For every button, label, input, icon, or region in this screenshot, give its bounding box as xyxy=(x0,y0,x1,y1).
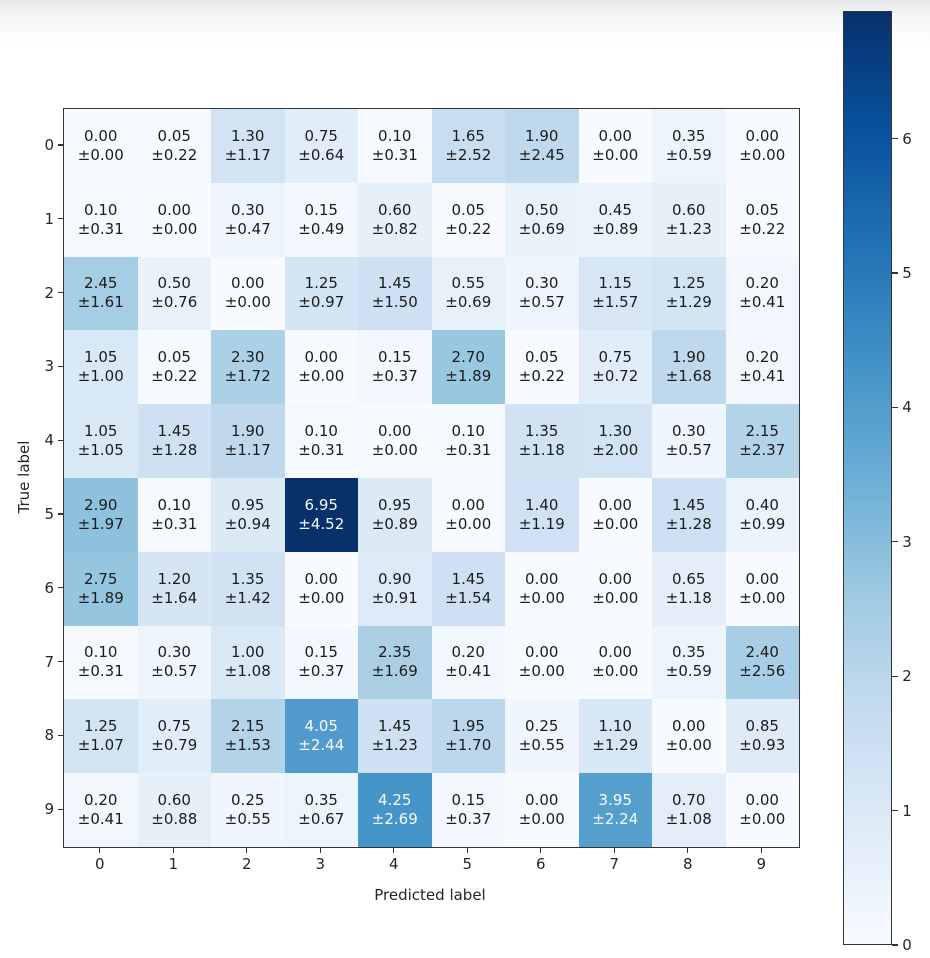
heatmap-cell-r4c4: 0.00±0.00 xyxy=(358,404,432,478)
heatmap-cell-r2c5: 0.55±0.69 xyxy=(432,257,506,331)
heatmap-cell-r5c0: 2.90±1.97 xyxy=(64,478,138,552)
heatmap-cell-r3c3: 0.00±0.00 xyxy=(285,330,359,404)
cell-mean-value: 0.75 xyxy=(305,127,338,146)
cell-std-value: ±0.76 xyxy=(151,293,197,312)
heatmap-cell-r2c0: 2.45±1.61 xyxy=(64,257,138,331)
cell-std-value: ±1.17 xyxy=(225,441,271,460)
cell-mean-value: 3.95 xyxy=(599,791,632,810)
heatmap-cell-r8c5: 1.95±1.70 xyxy=(432,699,506,773)
cell-std-value: ±0.00 xyxy=(298,589,344,608)
cell-std-value: ±0.57 xyxy=(151,662,197,681)
cell-mean-value: 0.05 xyxy=(452,201,485,220)
cell-mean-value: 1.10 xyxy=(599,717,632,736)
cell-mean-value: 1.45 xyxy=(452,570,485,589)
heatmap-cell-r8c0: 1.25±1.07 xyxy=(64,699,138,773)
confusion-matrix-figure: 0.00±0.000.05±0.221.30±1.170.75±0.640.10… xyxy=(0,0,930,958)
cell-mean-value: 2.75 xyxy=(84,570,117,589)
cell-mean-value: 0.20 xyxy=(84,791,117,810)
y-tickmark xyxy=(58,292,63,293)
cell-std-value: ±0.41 xyxy=(78,810,124,829)
heatmap-cell-r2c4: 1.45±1.50 xyxy=(358,257,432,331)
y-tickmark xyxy=(58,809,63,810)
heatmap-cell-r1c3: 0.15±0.49 xyxy=(285,183,359,257)
heatmap-cell-r9c2: 0.25±0.55 xyxy=(211,773,285,847)
heatmap-cell-r3c2: 2.30±1.72 xyxy=(211,330,285,404)
cell-mean-value: 1.05 xyxy=(84,422,117,441)
y-tick-label: 1 xyxy=(44,210,54,228)
heatmap-cell-r3c7: 0.75±0.72 xyxy=(579,330,653,404)
cell-mean-value: 0.20 xyxy=(746,274,779,293)
cell-mean-value: 0.90 xyxy=(378,570,411,589)
heatmap-cell-r2c9: 0.20±0.41 xyxy=(726,257,800,331)
heatmap-cell-r2c7: 1.15±1.57 xyxy=(579,257,653,331)
heatmap-grid: 0.00±0.000.05±0.221.30±1.170.75±0.640.10… xyxy=(64,109,799,847)
cell-std-value: ±1.42 xyxy=(225,589,271,608)
cell-std-value: ±1.53 xyxy=(225,736,271,755)
heatmap-cell-r4c7: 1.30±2.00 xyxy=(579,404,653,478)
cell-std-value: ±1.08 xyxy=(666,810,712,829)
cell-std-value: ±0.69 xyxy=(519,220,565,239)
heatmap-cell-r2c2: 0.00±0.00 xyxy=(211,257,285,331)
cell-mean-value: 0.70 xyxy=(672,791,705,810)
heatmap-cell-r2c8: 1.25±1.29 xyxy=(652,257,726,331)
cell-mean-value: 0.10 xyxy=(158,496,191,515)
heatmap-cell-r1c4: 0.60±0.82 xyxy=(358,183,432,257)
heatmap-cell-r2c1: 0.50±0.76 xyxy=(138,257,212,331)
heatmap-cell-r9c8: 0.70±1.08 xyxy=(652,773,726,847)
heatmap-cell-r5c5: 0.00±0.00 xyxy=(432,478,506,552)
cell-std-value: ±0.00 xyxy=(519,589,565,608)
cell-std-value: ±0.41 xyxy=(445,662,491,681)
cell-mean-value: 0.00 xyxy=(305,348,338,367)
heatmap-cell-r7c6: 0.00±0.00 xyxy=(505,626,579,700)
heatmap-cell-r1c1: 0.00±0.00 xyxy=(138,183,212,257)
colorbar-tick-label: 3 xyxy=(902,533,912,551)
y-tickmark xyxy=(58,661,63,662)
x-axis-label: Predicted label xyxy=(374,886,485,904)
heatmap-cell-r5c2: 0.95±0.94 xyxy=(211,478,285,552)
cell-mean-value: 0.30 xyxy=(231,201,264,220)
cell-std-value: ±0.00 xyxy=(225,293,271,312)
y-tick-label: 4 xyxy=(44,431,54,449)
cell-std-value: ±1.89 xyxy=(78,589,124,608)
x-tick-label: 4 xyxy=(389,855,399,873)
cell-std-value: ±1.29 xyxy=(592,736,638,755)
heatmap-cell-r8c2: 2.15±1.53 xyxy=(211,699,285,773)
cell-std-value: ±0.00 xyxy=(519,810,565,829)
heatmap-cell-r3c9: 0.20±0.41 xyxy=(726,330,800,404)
heatmap-cell-r4c0: 1.05±1.05 xyxy=(64,404,138,478)
cell-std-value: ±1.97 xyxy=(78,515,124,534)
cell-mean-value: 0.15 xyxy=(305,201,338,220)
cell-std-value: ±1.57 xyxy=(592,293,638,312)
cell-mean-value: 0.60 xyxy=(378,201,411,220)
cell-std-value: ±2.37 xyxy=(739,441,785,460)
cell-std-value: ±0.59 xyxy=(666,146,712,165)
cell-mean-value: 0.30 xyxy=(672,422,705,441)
cell-mean-value: 1.45 xyxy=(378,717,411,736)
cell-std-value: ±0.59 xyxy=(666,662,712,681)
cell-std-value: ±1.19 xyxy=(519,515,565,534)
heatmap-plot: 0.00±0.000.05±0.221.30±1.170.75±0.640.10… xyxy=(63,108,800,848)
cell-mean-value: 4.25 xyxy=(378,791,411,810)
cell-mean-value: 1.15 xyxy=(599,274,632,293)
cell-mean-value: 0.00 xyxy=(599,570,632,589)
cell-std-value: ±2.24 xyxy=(592,810,638,829)
colorbar-tickmark xyxy=(892,272,898,273)
cell-mean-value: 0.05 xyxy=(158,127,191,146)
cell-std-value: ±0.31 xyxy=(151,515,197,534)
cell-mean-value: 0.60 xyxy=(158,791,191,810)
heatmap-cell-r9c7: 3.95±2.24 xyxy=(579,773,653,847)
x-tickmark xyxy=(173,848,174,853)
heatmap-cell-r6c9: 0.00±0.00 xyxy=(726,552,800,626)
cell-std-value: ±0.41 xyxy=(739,367,785,386)
heatmap-cell-r2c6: 0.30±0.57 xyxy=(505,257,579,331)
heatmap-cell-r5c9: 0.40±0.99 xyxy=(726,478,800,552)
x-tick-label: 9 xyxy=(756,855,766,873)
cell-std-value: ±0.00 xyxy=(151,220,197,239)
cell-std-value: ±0.00 xyxy=(445,515,491,534)
cell-std-value: ±0.00 xyxy=(592,515,638,534)
x-tickmark xyxy=(467,848,468,853)
heatmap-cell-r1c8: 0.60±1.23 xyxy=(652,183,726,257)
heatmap-cell-r8c8: 0.00±0.00 xyxy=(652,699,726,773)
heatmap-cell-r9c5: 0.15±0.37 xyxy=(432,773,506,847)
cell-mean-value: 0.05 xyxy=(746,201,779,220)
cell-std-value: ±1.18 xyxy=(519,441,565,460)
heatmap-cell-r6c6: 0.00±0.00 xyxy=(505,552,579,626)
cell-mean-value: 0.00 xyxy=(599,127,632,146)
cell-mean-value: 0.10 xyxy=(378,127,411,146)
heatmap-cell-r1c2: 0.30±0.47 xyxy=(211,183,285,257)
heatmap-cell-r6c2: 1.35±1.42 xyxy=(211,552,285,626)
heatmap-cell-r7c4: 2.35±1.69 xyxy=(358,626,432,700)
heatmap-cell-r0c6: 1.90±2.45 xyxy=(505,109,579,183)
cell-mean-value: 6.95 xyxy=(305,496,338,515)
colorbar-tick-label: 5 xyxy=(902,264,912,282)
cell-std-value: ±0.22 xyxy=(151,367,197,386)
heatmap-cell-r9c0: 0.20±0.41 xyxy=(64,773,138,847)
y-tickmark xyxy=(58,513,63,514)
cell-std-value: ±4.52 xyxy=(298,515,344,534)
colorbar-tick-label: 0 xyxy=(902,936,912,954)
y-tickmark xyxy=(58,366,63,367)
cell-mean-value: 0.00 xyxy=(525,643,558,662)
x-tickmark xyxy=(99,848,100,853)
cell-std-value: ±1.07 xyxy=(78,736,124,755)
y-tickmark xyxy=(58,440,63,441)
cell-mean-value: 0.85 xyxy=(746,717,779,736)
cell-std-value: ±0.37 xyxy=(445,810,491,829)
cell-mean-value: 0.35 xyxy=(305,791,338,810)
cell-mean-value: 1.90 xyxy=(525,127,558,146)
cell-std-value: ±1.64 xyxy=(151,589,197,608)
cell-std-value: ±2.69 xyxy=(372,810,418,829)
cell-std-value: ±0.69 xyxy=(445,293,491,312)
colorbar-tick-label: 6 xyxy=(902,130,912,148)
cell-std-value: ±0.55 xyxy=(225,810,271,829)
cell-mean-value: 0.15 xyxy=(305,643,338,662)
cell-mean-value: 0.00 xyxy=(84,127,117,146)
cell-mean-value: 1.45 xyxy=(378,274,411,293)
cell-std-value: ±0.00 xyxy=(666,736,712,755)
cell-mean-value: 2.40 xyxy=(746,643,779,662)
x-tick-label: 6 xyxy=(536,855,546,873)
cell-mean-value: 1.45 xyxy=(158,422,191,441)
cell-std-value: ±2.45 xyxy=(519,146,565,165)
cell-std-value: ±0.31 xyxy=(78,662,124,681)
colorbar xyxy=(843,11,892,945)
cell-mean-value: 1.35 xyxy=(525,422,558,441)
heatmap-cell-r8c6: 0.25±0.55 xyxy=(505,699,579,773)
cell-std-value: ±0.94 xyxy=(225,515,271,534)
cell-mean-value: 1.25 xyxy=(305,274,338,293)
cell-mean-value: 0.00 xyxy=(746,127,779,146)
colorbar-tickmark xyxy=(892,407,898,408)
cell-mean-value: 0.75 xyxy=(158,717,191,736)
y-tickmark xyxy=(58,218,63,219)
cell-mean-value: 0.00 xyxy=(746,570,779,589)
heatmap-cell-r6c3: 0.00±0.00 xyxy=(285,552,359,626)
x-tick-label: 0 xyxy=(95,855,105,873)
cell-std-value: ±1.70 xyxy=(445,736,491,755)
cell-std-value: ±0.72 xyxy=(592,367,638,386)
x-tickmark xyxy=(540,848,541,853)
colorbar-tick-label: 4 xyxy=(902,398,912,416)
cell-std-value: ±1.72 xyxy=(225,367,271,386)
heatmap-cell-r8c3: 4.05±2.44 xyxy=(285,699,359,773)
colorbar-tick-label: 2 xyxy=(902,667,912,685)
heatmap-cell-r9c4: 4.25±2.69 xyxy=(358,773,432,847)
x-tick-label: 8 xyxy=(683,855,693,873)
cell-std-value: ±1.28 xyxy=(666,515,712,534)
cell-std-value: ±0.31 xyxy=(78,220,124,239)
heatmap-cell-r9c9: 0.00±0.00 xyxy=(726,773,800,847)
cell-mean-value: 0.00 xyxy=(231,274,264,293)
y-tickmark xyxy=(58,735,63,736)
cell-mean-value: 2.15 xyxy=(231,717,264,736)
cell-std-value: ±0.67 xyxy=(298,810,344,829)
heatmap-cell-r3c8: 1.90±1.68 xyxy=(652,330,726,404)
cell-std-value: ±0.00 xyxy=(372,441,418,460)
colorbar-tickmark xyxy=(892,541,898,542)
heatmap-cell-r0c1: 0.05±0.22 xyxy=(138,109,212,183)
cell-std-value: ±1.23 xyxy=(372,736,418,755)
cell-mean-value: 0.05 xyxy=(158,348,191,367)
heatmap-cell-r0c8: 0.35±0.59 xyxy=(652,109,726,183)
cell-mean-value: 0.10 xyxy=(84,201,117,220)
heatmap-cell-r6c4: 0.90±0.91 xyxy=(358,552,432,626)
cell-mean-value: 0.00 xyxy=(452,496,485,515)
cell-mean-value: 1.45 xyxy=(672,496,705,515)
cell-mean-value: 0.00 xyxy=(599,643,632,662)
heatmap-cell-r7c5: 0.20±0.41 xyxy=(432,626,506,700)
heatmap-cell-r6c5: 1.45±1.54 xyxy=(432,552,506,626)
cell-std-value: ±1.28 xyxy=(151,441,197,460)
cell-std-value: ±0.47 xyxy=(225,220,271,239)
colorbar-tickmark xyxy=(892,944,898,945)
cell-std-value: ±1.69 xyxy=(372,662,418,681)
cell-std-value: ±0.31 xyxy=(298,441,344,460)
x-tickmark xyxy=(320,848,321,853)
cell-std-value: ±2.52 xyxy=(445,146,491,165)
cell-std-value: ±0.97 xyxy=(298,293,344,312)
heatmap-cell-r7c8: 0.35±0.59 xyxy=(652,626,726,700)
colorbar-tickmark xyxy=(892,810,898,811)
cell-mean-value: 1.90 xyxy=(672,348,705,367)
y-tick-label: 2 xyxy=(44,284,54,302)
cell-std-value: ±0.00 xyxy=(739,589,785,608)
cell-mean-value: 0.95 xyxy=(378,496,411,515)
cell-mean-value: 1.00 xyxy=(231,643,264,662)
y-tick-label: 8 xyxy=(44,726,54,744)
cell-mean-value: 0.10 xyxy=(452,422,485,441)
y-tick-label: 6 xyxy=(44,579,54,597)
cell-mean-value: 0.00 xyxy=(672,717,705,736)
cell-std-value: ±0.82 xyxy=(372,220,418,239)
x-tickmark xyxy=(614,848,615,853)
cell-mean-value: 0.60 xyxy=(672,201,705,220)
cell-mean-value: 0.15 xyxy=(378,348,411,367)
cell-mean-value: 1.90 xyxy=(231,422,264,441)
cell-mean-value: 0.00 xyxy=(378,422,411,441)
cell-mean-value: 1.65 xyxy=(452,127,485,146)
cell-mean-value: 0.15 xyxy=(452,791,485,810)
heatmap-cell-r8c4: 1.45±1.23 xyxy=(358,699,432,773)
cell-std-value: ±0.00 xyxy=(592,589,638,608)
cell-std-value: ±0.57 xyxy=(666,441,712,460)
heatmap-cell-r8c9: 0.85±0.93 xyxy=(726,699,800,773)
heatmap-cell-r9c6: 0.00±0.00 xyxy=(505,773,579,847)
cell-std-value: ±1.61 xyxy=(78,293,124,312)
cell-mean-value: 1.05 xyxy=(84,348,117,367)
cell-std-value: ±1.54 xyxy=(445,589,491,608)
cell-mean-value: 0.00 xyxy=(525,791,558,810)
cell-mean-value: 0.10 xyxy=(84,643,117,662)
y-axis-label: True label xyxy=(15,441,33,514)
x-tickmark xyxy=(687,848,688,853)
cell-mean-value: 0.45 xyxy=(599,201,632,220)
cell-std-value: ±1.68 xyxy=(666,367,712,386)
y-tick-label: 5 xyxy=(44,505,54,523)
cell-mean-value: 1.20 xyxy=(158,570,191,589)
heatmap-cell-r6c1: 1.20±1.64 xyxy=(138,552,212,626)
cell-std-value: ±0.79 xyxy=(151,736,197,755)
cell-std-value: ±0.00 xyxy=(298,367,344,386)
cell-std-value: ±0.93 xyxy=(739,736,785,755)
cell-std-value: ±0.22 xyxy=(151,146,197,165)
cell-mean-value: 0.20 xyxy=(452,643,485,662)
cell-mean-value: 1.30 xyxy=(231,127,264,146)
heatmap-cell-r0c5: 1.65±2.52 xyxy=(432,109,506,183)
cell-mean-value: 4.05 xyxy=(305,717,338,736)
cell-std-value: ±0.88 xyxy=(151,810,197,829)
cell-std-value: ±0.41 xyxy=(739,293,785,312)
cell-mean-value: 1.95 xyxy=(452,717,485,736)
cell-mean-value: 2.90 xyxy=(84,496,117,515)
y-tick-label: 7 xyxy=(44,653,54,671)
cell-std-value: ±0.49 xyxy=(298,220,344,239)
cell-std-value: ±0.91 xyxy=(372,589,418,608)
cell-std-value: ±1.05 xyxy=(78,441,124,460)
x-tickmark xyxy=(393,848,394,853)
cell-std-value: ±0.00 xyxy=(592,146,638,165)
cell-std-value: ±0.22 xyxy=(519,367,565,386)
cell-mean-value: 0.30 xyxy=(158,643,191,662)
cell-mean-value: 0.35 xyxy=(672,127,705,146)
cell-mean-value: 0.65 xyxy=(672,570,705,589)
heatmap-cell-r7c9: 2.40±2.56 xyxy=(726,626,800,700)
heatmap-cell-r5c3: 6.95±4.52 xyxy=(285,478,359,552)
x-tick-label: 2 xyxy=(242,855,252,873)
cell-mean-value: 1.40 xyxy=(525,496,558,515)
heatmap-cell-r4c8: 0.30±0.57 xyxy=(652,404,726,478)
cell-mean-value: 1.25 xyxy=(672,274,705,293)
cell-std-value: ±1.89 xyxy=(445,367,491,386)
heatmap-cell-r9c1: 0.60±0.88 xyxy=(138,773,212,847)
cell-mean-value: 0.55 xyxy=(452,274,485,293)
heatmap-cell-r5c1: 0.10±0.31 xyxy=(138,478,212,552)
cell-std-value: ±0.37 xyxy=(372,367,418,386)
heatmap-cell-r4c6: 1.35±1.18 xyxy=(505,404,579,478)
cell-mean-value: 1.30 xyxy=(599,422,632,441)
cell-mean-value: 0.25 xyxy=(525,717,558,736)
y-tick-label: 0 xyxy=(44,136,54,154)
heatmap-cell-r3c6: 0.05±0.22 xyxy=(505,330,579,404)
cell-mean-value: 0.35 xyxy=(672,643,705,662)
y-tickmark xyxy=(58,144,63,145)
cell-mean-value: 0.10 xyxy=(305,422,338,441)
cell-std-value: ±1.50 xyxy=(372,293,418,312)
heatmap-cell-r5c6: 1.40±1.19 xyxy=(505,478,579,552)
cell-mean-value: 2.30 xyxy=(231,348,264,367)
cell-mean-value: 2.70 xyxy=(452,348,485,367)
heatmap-cell-r1c7: 0.45±0.89 xyxy=(579,183,653,257)
cell-mean-value: 0.30 xyxy=(525,274,558,293)
cell-mean-value: 1.25 xyxy=(84,717,117,736)
cell-std-value: ±2.44 xyxy=(298,736,344,755)
cell-mean-value: 0.95 xyxy=(231,496,264,515)
cell-std-value: ±1.17 xyxy=(225,146,271,165)
heatmap-cell-r3c1: 0.05±0.22 xyxy=(138,330,212,404)
heatmap-cell-r8c7: 1.10±1.29 xyxy=(579,699,653,773)
heatmap-cell-r4c9: 2.15±2.37 xyxy=(726,404,800,478)
cell-std-value: ±0.37 xyxy=(298,662,344,681)
cell-mean-value: 2.45 xyxy=(84,274,117,293)
heatmap-cell-r0c3: 0.75±0.64 xyxy=(285,109,359,183)
heatmap-cell-r2c3: 1.25±0.97 xyxy=(285,257,359,331)
cell-std-value: ±0.22 xyxy=(445,220,491,239)
cell-mean-value: 0.75 xyxy=(599,348,632,367)
heatmap-cell-r4c5: 0.10±0.31 xyxy=(432,404,506,478)
heatmap-cell-r6c8: 0.65±1.18 xyxy=(652,552,726,626)
cell-mean-value: 0.00 xyxy=(305,570,338,589)
cell-std-value: ±0.89 xyxy=(372,515,418,534)
heatmap-cell-r7c0: 0.10±0.31 xyxy=(64,626,138,700)
colorbar-tickmark xyxy=(892,676,898,677)
heatmap-cell-r0c4: 0.10±0.31 xyxy=(358,109,432,183)
y-tick-label: 9 xyxy=(44,800,54,818)
cell-std-value: ±1.23 xyxy=(666,220,712,239)
heatmap-cell-r3c0: 1.05±1.00 xyxy=(64,330,138,404)
heatmap-cell-r3c4: 0.15±0.37 xyxy=(358,330,432,404)
cell-std-value: ±2.00 xyxy=(592,441,638,460)
cell-std-value: ±0.57 xyxy=(519,293,565,312)
heatmap-cell-r8c1: 0.75±0.79 xyxy=(138,699,212,773)
heatmap-cell-r7c3: 0.15±0.37 xyxy=(285,626,359,700)
x-tick-label: 5 xyxy=(462,855,472,873)
